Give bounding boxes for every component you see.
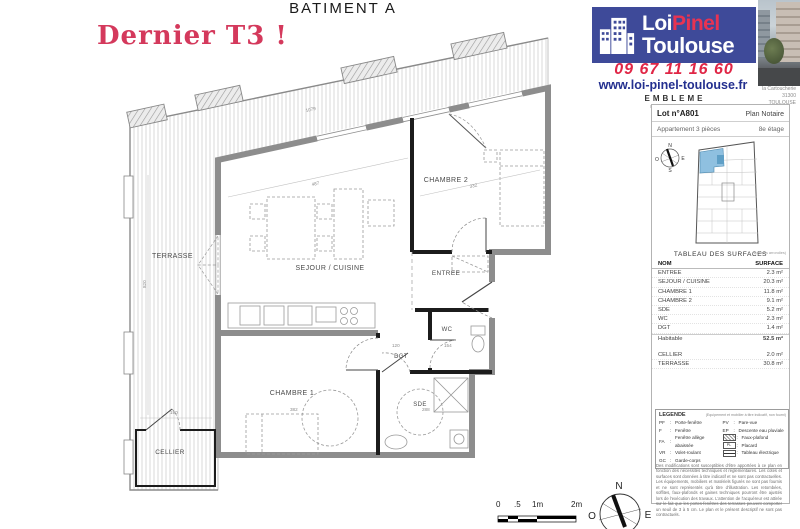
room-label-cellier: CELLIER [155, 449, 184, 456]
floor-level: 8e étage [759, 126, 784, 133]
apartment-type: Appartement 3 pièces [657, 126, 720, 133]
surface-row: CHAMBRE 29.1 m² [652, 297, 789, 306]
surface-total-row: Habitable 52.5 m² [652, 334, 789, 343]
developer-name: EMBLEME [640, 94, 710, 103]
scale-label-1m: 1m [532, 500, 543, 509]
placard-symbol: PL [723, 442, 736, 449]
mini-compass-icon: N E O S [654, 139, 686, 173]
phone-number: 09 67 11 16 60 [592, 61, 756, 79]
info-panel: Lot n°A801 Plan Notaire Appartement 3 pi… [651, 104, 790, 504]
room-label-chambre1: CHAMBRE 1 [270, 390, 314, 397]
surface-row: WC2.3 m² [652, 315, 789, 324]
mini-compass-o: O [655, 157, 659, 163]
room-label-dgt: DGT [394, 354, 408, 360]
surface-table-note: (surfaces arrondies) [752, 251, 786, 255]
location-photo [758, 0, 800, 86]
legend-right-column: PV:Pare-vue EP:Descente eau pluviale :Fa… [723, 419, 787, 465]
dim-wc: 154 [444, 343, 452, 348]
legend-note: (Equipement et mobilier à titre indicati… [706, 413, 786, 417]
promo-text: Dernier T3 ! [97, 21, 288, 51]
scale-label-05: .5 [514, 500, 521, 509]
room-label-sejour: SEJOUR / CUISINE [295, 265, 364, 272]
surface-header-nom: NOM [658, 260, 672, 268]
floor-plan: 1079 487 332 820 190 382 288 120 154 TER… [0, 0, 600, 529]
brand-line1: LoiPinel [642, 13, 734, 34]
room-label-sde: SDE [413, 402, 427, 408]
pare-vue [124, 332, 133, 374]
brand-pinel: Pinel [672, 12, 720, 35]
room-label-chambre2: CHAMBRE 2 [424, 177, 468, 184]
surface-header-row: NOM SURFACE [652, 260, 789, 269]
mini-floorplan [692, 139, 764, 247]
lot-row: Lot n°A801 Plan Notaire [652, 105, 789, 122]
mini-compass-s: S [668, 168, 672, 173]
surface-row: ENTREE2.3 m² [652, 269, 789, 278]
surface-row: CELLIER2.0 m² [652, 351, 789, 360]
surface-table: TABLEAU DES SURFACES (surfaces arrondies… [652, 251, 789, 369]
page-title: BATIMENT A [258, 0, 428, 17]
surface-header-surface: SURFACE [755, 260, 783, 268]
compass-o: O [588, 511, 596, 522]
scale-label-2m: 2m [571, 500, 582, 509]
tableau-electrique-symbol [723, 450, 736, 457]
legend-box: LEGENDE (Equipement et mobilier à titre … [655, 409, 789, 469]
dim-chambre1: 382 [290, 407, 298, 412]
room-label-entree: ENTREE [432, 270, 460, 277]
dim-cellier: 190 [170, 410, 178, 415]
surface-row: TERRASSE30.8 m² [652, 360, 789, 369]
scale-label-0: 0 [496, 500, 500, 509]
surface-row: CHAMBRE 111.8 m² [652, 288, 789, 297]
address-line: la Cartoucherie [730, 86, 796, 93]
legend-left-column: PF:Porte-fenêtre F:Fenêtre FA:Fenêtre al… [659, 419, 723, 465]
compass-e: E [645, 510, 652, 521]
brand-loi: Loi [642, 12, 672, 35]
apartment-row: Appartement 3 pièces 8e étage [652, 122, 789, 137]
brand-line2: Toulouse [642, 35, 734, 57]
pare-vue [124, 176, 133, 218]
address-line: 31300 [730, 93, 796, 100]
faux-plafond-symbol [723, 434, 736, 441]
floor-preview: N E O S [652, 137, 789, 249]
pare-vue [124, 440, 133, 474]
mini-compass-e: E [681, 156, 685, 162]
legend-title: LEGENDE [659, 412, 686, 418]
room-label-terrasse: TERRASSE [152, 253, 193, 260]
compass-rose: N E O S [585, 478, 655, 529]
disclaimer-text: Des modifications sont susceptibles d'êt… [656, 463, 782, 518]
room-label-wc: WC [442, 327, 453, 333]
surface-row: SDE5.2 m² [652, 306, 789, 315]
dim-left: 820 [142, 280, 147, 288]
brand-banner: LoiPinel Toulouse [592, 7, 756, 63]
building-logo-icon [598, 13, 636, 57]
plan-type: Plan Notaire [745, 111, 784, 118]
lot-number: Lot n°A801 [657, 109, 699, 118]
flyer-page: 1079 487 332 820 190 382 288 120 154 TER… [0, 0, 800, 529]
scale-bar-graphic [492, 514, 592, 526]
surface-row: SEJOUR / CUISINE20.3 m² [652, 278, 789, 287]
mini-compass-n: N [668, 143, 672, 149]
dim-dgt: 120 [392, 343, 400, 348]
compass-n: N [615, 481, 622, 492]
surface-row: DGT1.4 m² [652, 324, 789, 333]
annex-surfaces: CELLIER2.0 m² TERRASSE30.8 m² [652, 351, 789, 369]
